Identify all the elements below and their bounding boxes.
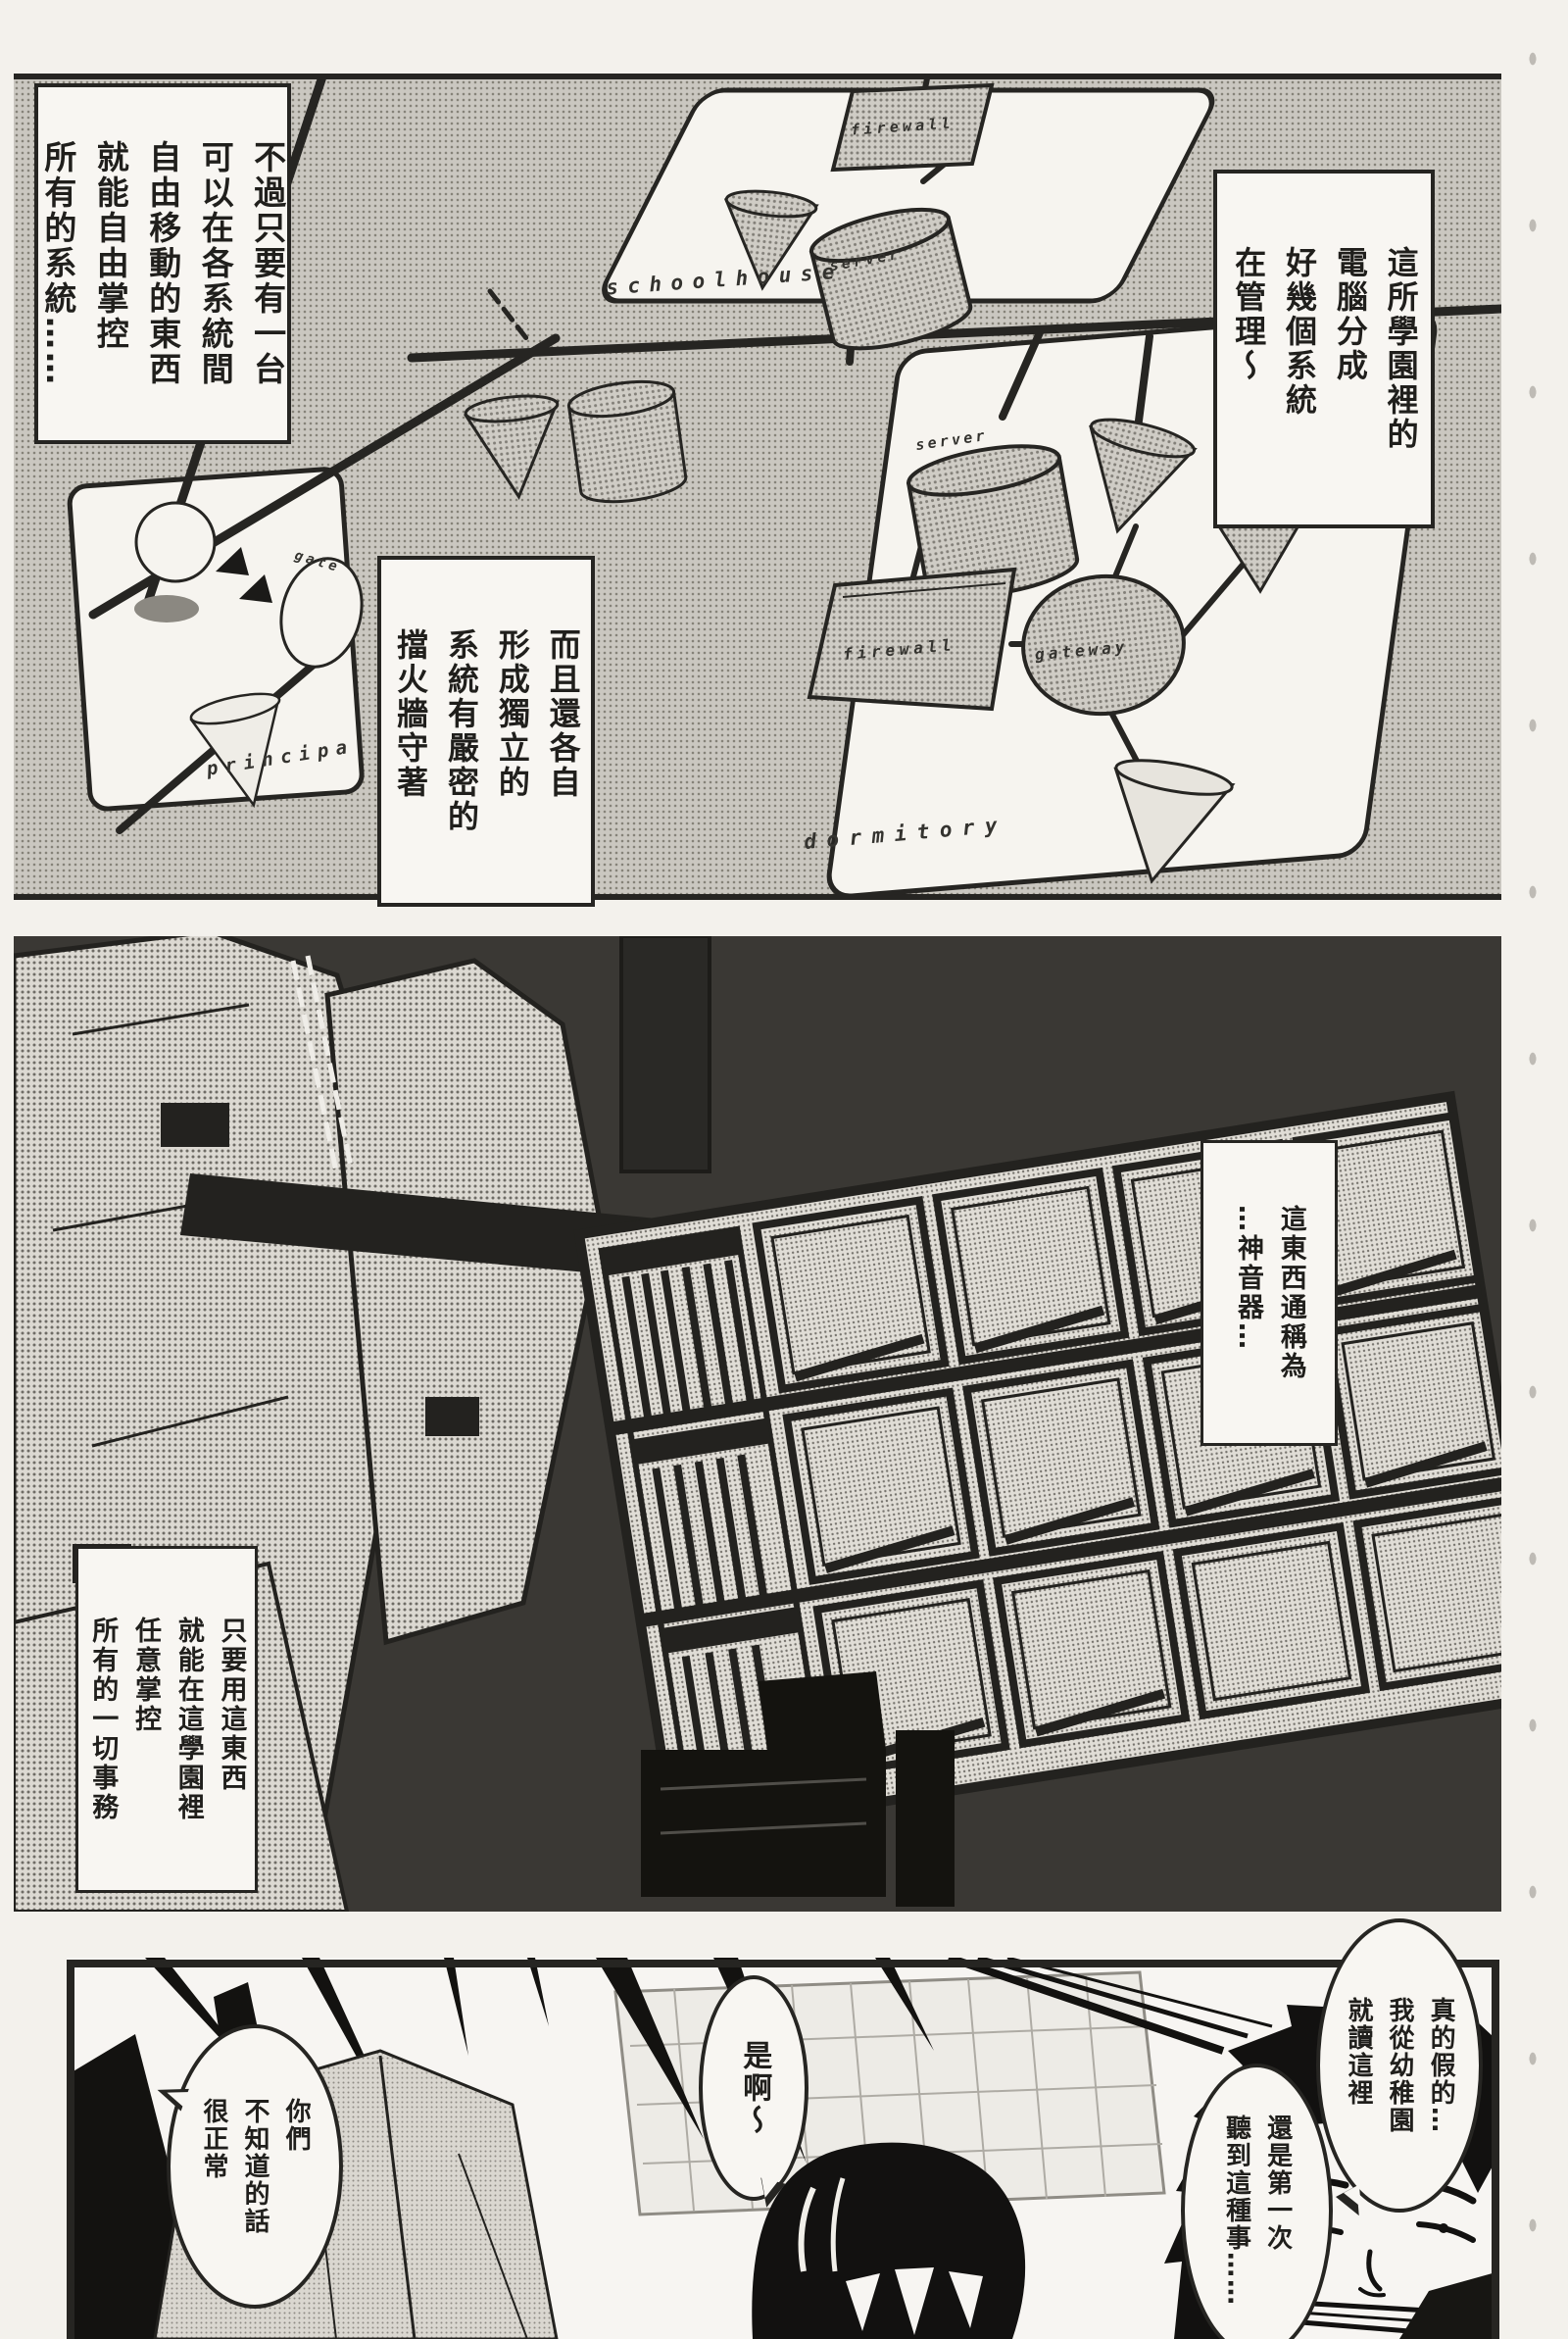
- caption-text: 這所學園裡的 電腦分成 好幾個系統 在管理～: [1222, 246, 1425, 452]
- server-cylinder-icon: [566, 376, 688, 508]
- bubble-really: 真的假的… 我從幼稚園 就讀這裡: [1316, 1918, 1483, 2213]
- caption-text: 只要用這東西 就能在這學園裡 任意掌控 所有的一切事務: [81, 1617, 253, 1822]
- shadow-blob: [134, 595, 199, 622]
- caption-box-systems-managed: 這所學園裡的 電腦分成 好幾個系統 在管理～: [1213, 170, 1435, 528]
- ball-icon: [136, 503, 215, 581]
- caption-box-control-everything: 只要用這東西 就能在這學園裡 任意掌控 所有的一切事務: [75, 1546, 258, 1893]
- page-edge-texture: [1515, 0, 1568, 2339]
- cone-node-icon: [465, 392, 566, 501]
- bubble-first-time: 還是第一次 聽到這種事……: [1181, 2064, 1333, 2339]
- bubble-text: 真的假的… 我從幼稚園 就讀這裡: [1338, 1997, 1461, 2134]
- manga-page: schoolhouse firewall server gate princip…: [0, 0, 1568, 2339]
- caption-box-only-need-one: 不過只要有一台 可以在各系統間 自由移動的東西 就能自由掌控 所有的系統……: [34, 83, 291, 444]
- bubble-text: 是啊～: [730, 2040, 778, 2137]
- caption-box-called-device: 這東西通稱為 …神音器…: [1200, 1140, 1338, 1446]
- bubble-text: 你們 不知道的話 很正常: [193, 2098, 317, 2235]
- caption-text: 而且還各自 形成獨立的 系統有嚴密的 擋火牆守著: [384, 628, 587, 834]
- shelf-wall: [579, 1096, 1501, 1834]
- bubble-yeah: 是啊～: [699, 1975, 808, 2201]
- caption-text: 這東西通稱為 …神音器…: [1226, 1205, 1311, 1381]
- bubble-text: 還是第一次 聽到這種事……: [1215, 2115, 1298, 2307]
- caption-box-firewalled: 而且還各自 形成獨立的 系統有嚴密的 擋火牆守著: [377, 556, 595, 907]
- caption-text: 不過只要有一台 可以在各系統間 自由移動的東西 就能自由掌控 所有的系統……: [31, 140, 293, 387]
- bubble-normal: 你們 不知道的話 很正常: [167, 2024, 343, 2309]
